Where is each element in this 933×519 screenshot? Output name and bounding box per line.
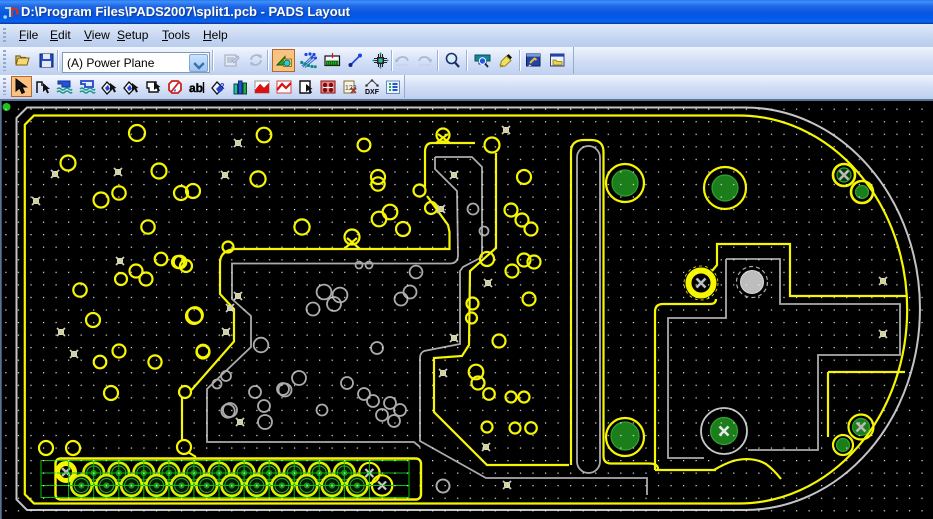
svg-text:2: 2 (220, 82, 225, 91)
svg-text:ab: ab (189, 81, 203, 95)
svg-text:DXF: DXF (365, 89, 380, 96)
